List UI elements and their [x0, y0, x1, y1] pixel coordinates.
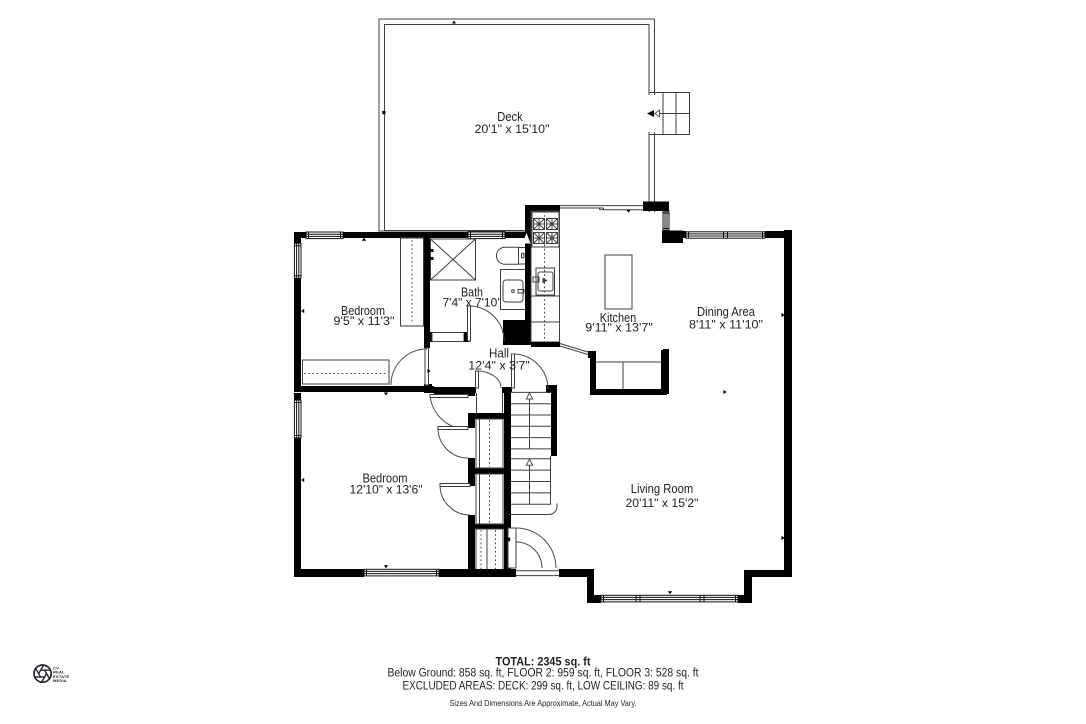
svg-text:20'1" x 15'10": 20'1" x 15'10" [475, 124, 550, 136]
svg-text:9'5" x 11'3": 9'5" x 11'3" [334, 316, 395, 328]
svg-text:12'4" x 3'7": 12'4" x 3'7" [468, 360, 530, 372]
svg-text:Bedroom: Bedroom [363, 471, 408, 485]
svg-text:Living Room: Living Room [631, 482, 694, 496]
svg-text:EXCLUDED AREAS: DECK: 299 sq.: EXCLUDED AREAS: DECK: 299 sq. ft, LOW CE… [403, 680, 685, 692]
svg-text:9'11" x 13'7": 9'11" x 13'7" [585, 323, 653, 335]
svg-text:MEDIA: MEDIA [53, 678, 67, 683]
svg-text:12'10" x 13'6": 12'10" x 13'6" [350, 484, 423, 496]
svg-text:Sizes And Dimensions Are Appro: Sizes And Dimensions Are Approximate, Ac… [450, 698, 637, 708]
svg-text:Hall: Hall [489, 347, 509, 361]
svg-text:7'4" x 7'10": 7'4" x 7'10" [443, 298, 502, 310]
svg-text:Deck: Deck [497, 110, 523, 124]
svg-text:20'11" x 15'2": 20'11" x 15'2" [626, 498, 699, 510]
svg-text:Below Ground: 858 sq. ft, FLOO: Below Ground: 858 sq. ft, FLOOR 2: 959 s… [388, 667, 700, 679]
svg-text:8'11" x 11'10": 8'11" x 11'10" [689, 320, 763, 332]
svg-text:Dining Area: Dining Area [697, 305, 755, 319]
